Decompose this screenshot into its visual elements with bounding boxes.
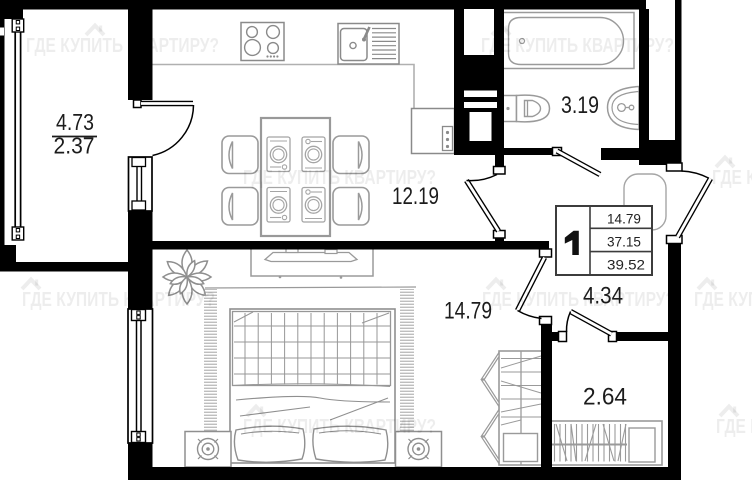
svg-text:ГДЕ КУПИТЬ КВАРТИРУ?: ГДЕ КУПИТЬ КВАРТИРУ?: [243, 167, 436, 189]
svg-text:ГДЕ КУПИТЬ КВАРТИРУ?: ГДЕ КУПИТЬ КВАРТИРУ?: [22, 289, 215, 311]
svg-text:3.19: 3.19: [561, 92, 599, 119]
svg-text:14.79: 14.79: [607, 212, 641, 227]
svg-text:ГДЕ КУПИТЬ КВАРТИРУ?: ГДЕ КУПИТЬ КВАРТИРУ?: [716, 416, 752, 438]
svg-text:ГДЕ КУПИТЬ КВАРТИРУ?: ГДЕ КУПИТЬ КВАРТИРУ?: [481, 35, 674, 57]
svg-text:2.64: 2.64: [583, 384, 627, 411]
svg-text:ГДЕ КУПИТЬ КВАРТИРУ?: ГДЕ КУПИТЬ КВАРТИРУ?: [243, 416, 436, 438]
svg-text:ГДЕ КУПИТЬ КВАРТИРУ?: ГДЕ КУПИТЬ КВАРТИРУ?: [694, 289, 752, 311]
svg-text:ГДЕ КУПИТЬ КВАРТИРУ?: ГДЕ КУПИТЬ КВАРТИРУ?: [482, 289, 675, 311]
svg-text:37.15: 37.15: [607, 235, 641, 250]
svg-text:39.52: 39.52: [607, 258, 645, 273]
svg-text:4.73: 4.73: [56, 109, 94, 135]
svg-text:ГДЕ КУПИТЬ КВАРТИРУ?: ГДЕ КУПИТЬ КВАРТИРУ?: [26, 35, 219, 57]
svg-text:2.37: 2.37: [54, 133, 95, 159]
svg-text:ГДЕ КУПИТЬ КВАРТИРУ?: ГДЕ КУПИТЬ КВАРТИРУ?: [712, 167, 752, 189]
